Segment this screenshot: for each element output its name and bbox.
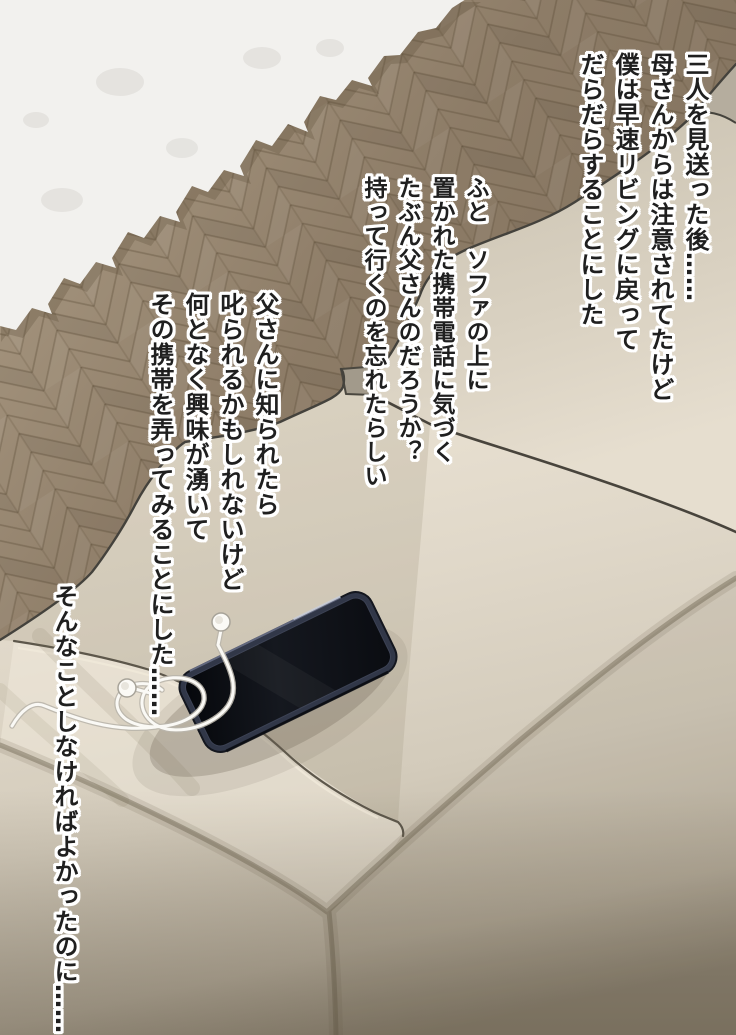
narration-line: 三人を見送った後…… (677, 52, 712, 402)
narration-line: そんなことしなければよかったのに…… (44, 584, 84, 1034)
narration-line: その携帯を弄ってみることにした…… (142, 292, 177, 717)
narration-line: 父さんに知られたら (247, 292, 282, 717)
narration-block-intro: 三人を見送った後…… 母さんからは注意されてたけど 僕は早速リビングに戻って だ… (572, 52, 712, 402)
narration-line: 母さんからは注意されてたけど (642, 52, 677, 402)
earbud-left-cap (121, 682, 129, 690)
narration-line: 持って行くのを忘れたらしい (356, 176, 390, 488)
narration-line: たぶん父さんのだろうか？ (390, 176, 424, 488)
narration-block-regret: そんなことしなければよかったのに…… (44, 584, 84, 1034)
narration-block-notice-phone: ふと ソファの上に 置かれた携帯電話に気づく たぶん父さんのだろうか？ 持って行… (356, 176, 492, 488)
narration-line: 僕は早速リビングに戻って (607, 52, 642, 402)
narration-line: 置かれた携帯電話に気づく (424, 176, 458, 488)
illustration-page: 三人を見送った後…… 母さんからは注意されてたけど 僕は早速リビングに戻って だ… (0, 0, 736, 1035)
narration-line: だらだらすることにした (572, 52, 607, 402)
narration-line: ふと ソファの上に (458, 176, 492, 488)
narration-line: 叱られるかもしれないけど (212, 292, 247, 717)
narration-line: 何となく興味が湧いて (177, 292, 212, 717)
narration-block-temptation: 父さんに知られたら 叱られるかもしれないけど 何となく興味が湧いて その携帯を弄… (142, 292, 282, 717)
